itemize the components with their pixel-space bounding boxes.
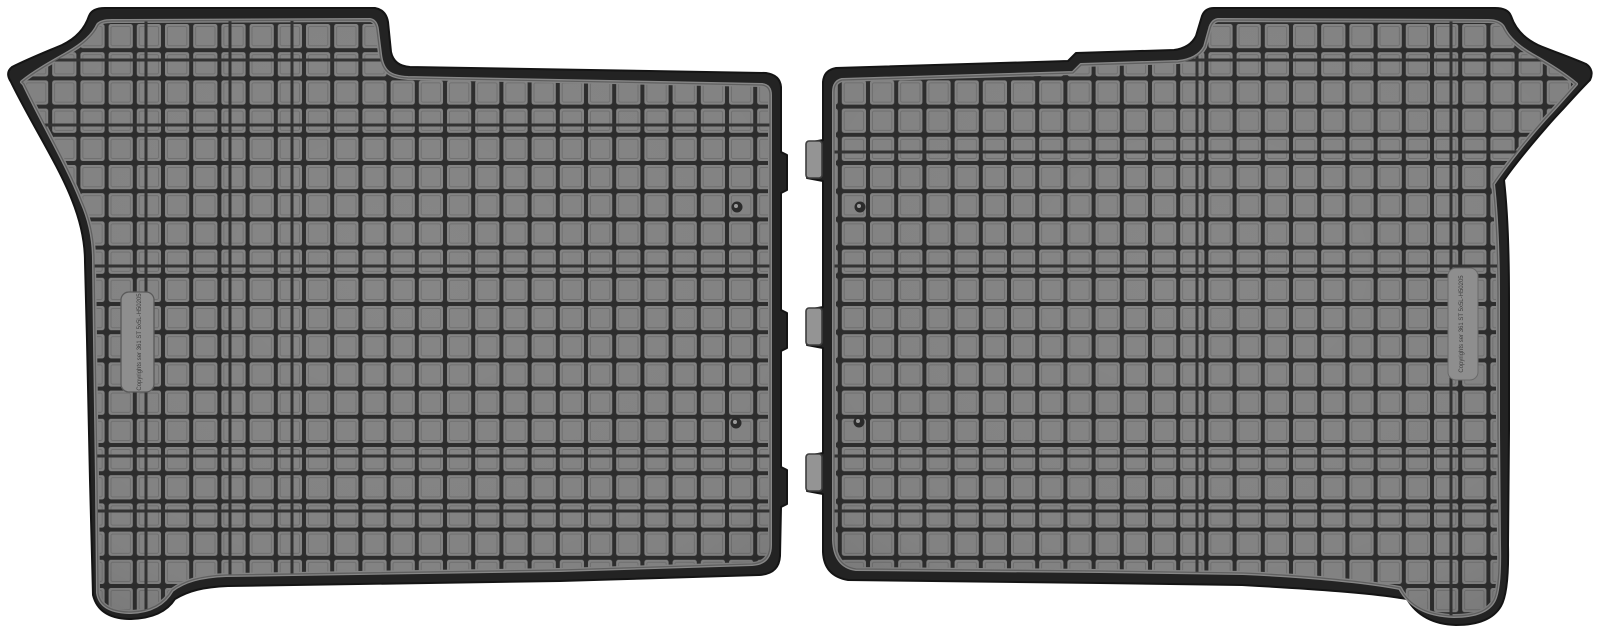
svg-text:Copyrights ser 361 ST 5x5L-H50: Copyrights ser 361 ST 5x5L-H50205 (1459, 275, 1465, 373)
svg-text:Copyrights ser 361 ST 5x5L-H50: Copyrights ser 361 ST 5x5L-H50205 (137, 293, 143, 391)
